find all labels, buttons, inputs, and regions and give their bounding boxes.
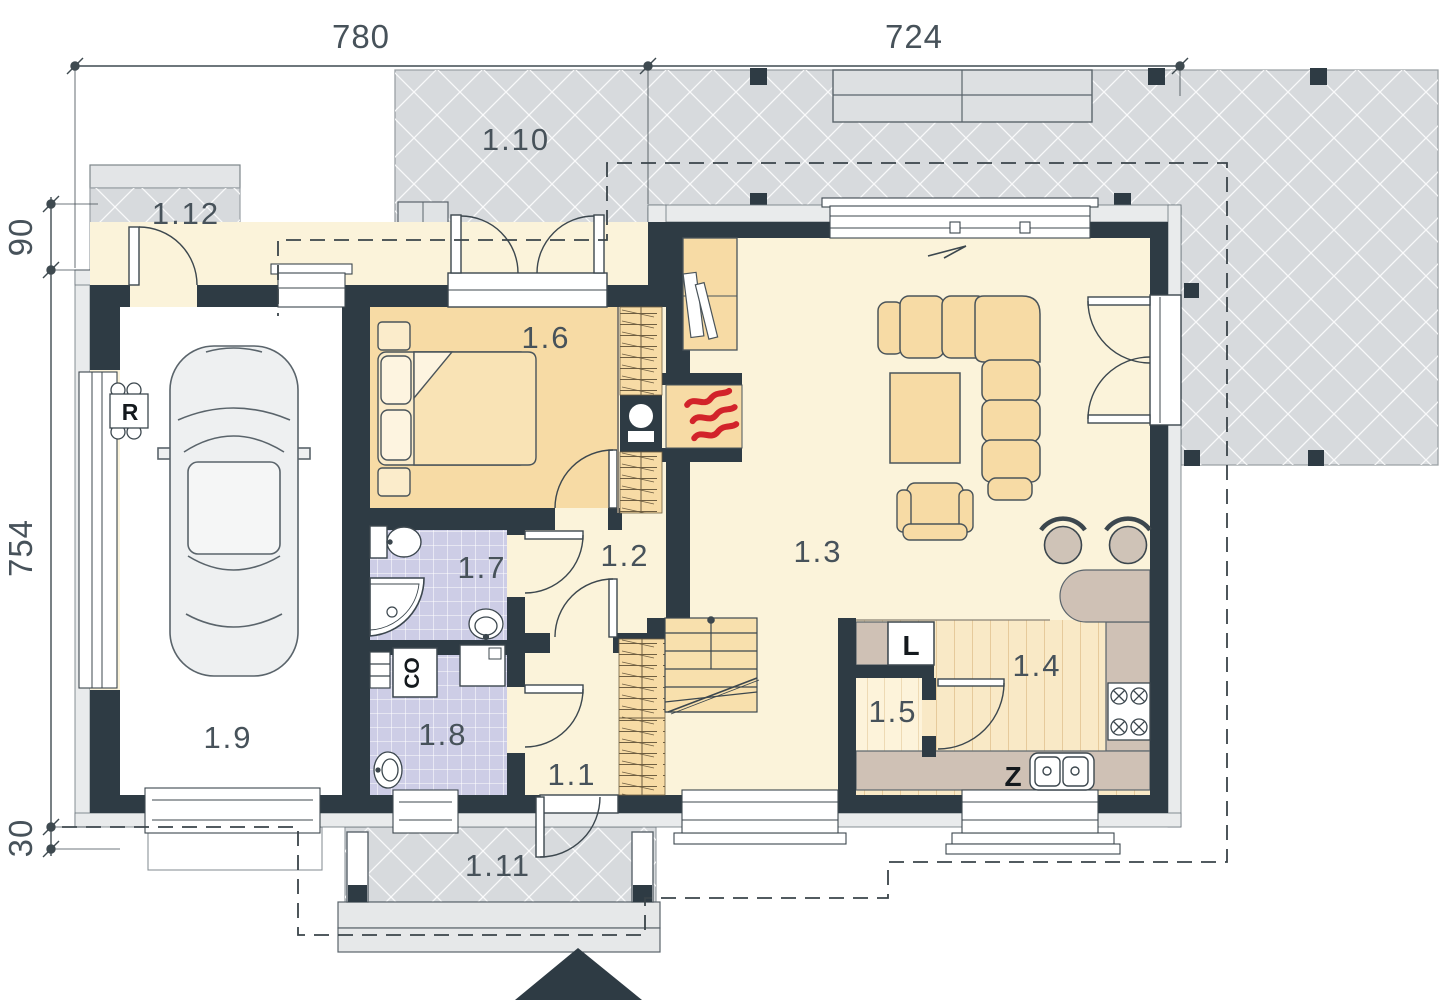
room-label-bathroom: 1.7 (457, 550, 506, 585)
room-label-terrace-main: 1.10 (482, 122, 550, 157)
radiator-icon (370, 652, 390, 688)
room-label-kitchen: 1.4 (1012, 648, 1061, 683)
dim-724: 724 (885, 18, 943, 55)
hall-wardrobe-icon (619, 639, 665, 795)
kitchen-peninsula (1060, 570, 1150, 622)
workbench-label: R (122, 399, 139, 425)
terrace-post (750, 68, 767, 85)
room-label-hall: 1.1 (547, 757, 596, 792)
entrance-arrow-icon (515, 948, 642, 1000)
terrace-post (1184, 283, 1199, 298)
dim-90: 90 (2, 218, 39, 257)
fridge-label: L (902, 630, 919, 661)
fireplace-icon (666, 385, 742, 448)
terrace-post (1184, 450, 1200, 466)
terrace-table (833, 70, 1092, 122)
room-label-utility: 1.8 (418, 717, 467, 752)
coffee-table-icon (890, 373, 960, 463)
terrace-post (1148, 68, 1165, 85)
armchair-icon (897, 483, 973, 540)
kitchen-window (946, 790, 1120, 854)
utility-window (393, 790, 458, 833)
room-label-corridor: 1.2 (600, 538, 649, 573)
room-label-garage: 1.9 (203, 720, 252, 755)
washing-machine-icon (460, 645, 505, 686)
floor-plan-drawing: 1.9 1.6 1.7 1.8 1.1 1.2 1.3 1.4 1.5 1.10… (0, 0, 1456, 1000)
kitchen-sink-icon (1030, 753, 1094, 790)
tv-cabinet-icon (683, 238, 737, 350)
porch-column-left-base (348, 885, 367, 902)
porch-step-2 (338, 928, 660, 952)
stair-window (674, 790, 846, 844)
room-label-bedroom: 1.6 (521, 320, 570, 355)
room-label-pantry: 1.5 (868, 694, 917, 729)
terrace-post (1308, 450, 1324, 466)
entrance-porch (338, 827, 660, 952)
room-label-terrace-side: 1.12 (152, 196, 220, 231)
dim-30: 30 (2, 819, 39, 858)
water-heater-icon (629, 404, 653, 428)
washbasin-icon (469, 609, 503, 640)
living-top-window (822, 198, 1098, 238)
room-label-living: 1.3 (793, 534, 842, 569)
room-label-porch: 1.11 (465, 848, 531, 883)
toilet-icon (370, 526, 421, 558)
stove-icon (1108, 683, 1150, 740)
dim-780: 780 (332, 18, 390, 55)
terrace-post (1310, 68, 1327, 85)
floor-plan-page: 1.9 1.6 1.7 1.8 1.1 1.2 1.3 1.4 1.5 1.10… (0, 0, 1456, 1000)
dim-754: 754 (2, 519, 39, 577)
porch-column-right-base (633, 885, 652, 902)
sink-label: Z (1004, 761, 1021, 792)
boiler-label: CO (401, 657, 424, 689)
utility-basin-icon (374, 752, 402, 788)
car-icon (158, 346, 310, 676)
porch-step-1 (338, 902, 660, 928)
garage-top-window (271, 264, 352, 307)
stairs-icon (665, 617, 759, 714)
